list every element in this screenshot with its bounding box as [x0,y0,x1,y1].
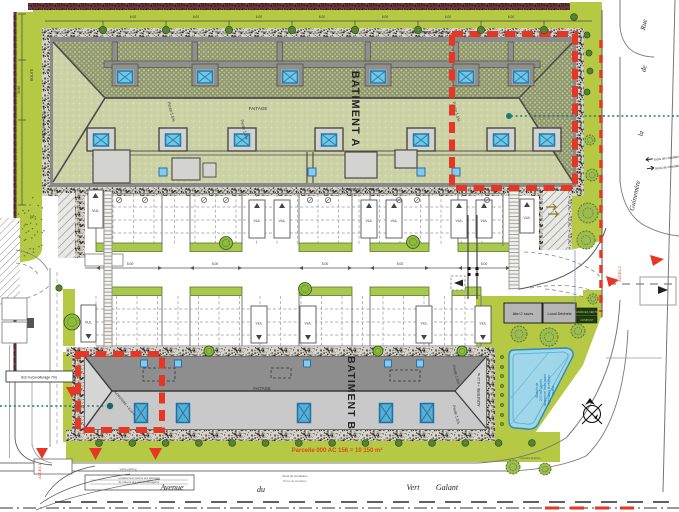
svg-text:6.00: 6.00 [382,15,388,19]
svg-text:6.00: 6.00 [319,15,325,19]
svg-text:VUL: VUL [480,322,487,326]
svg-text:5.00: 5.00 [127,262,134,266]
svg-text:Local Déchets: Local Déchets [547,312,571,316]
svg-text:6.00: 6.00 [445,15,451,19]
svg-text:Borne de circulation: Borne de circulation [284,479,307,483]
svg-text:VUL: VUL [421,322,428,326]
svg-text:Coussins berlinois: Coussins berlinois [519,456,541,460]
svg-text:Sens de circulation: Sens de circulation [282,474,308,478]
svg-text:ACROTERE + 10.48 m: ACROTERE + 10.48 m [42,107,46,142]
svg-text:5.00: 5.00 [212,262,219,266]
svg-text:VUL: VUL [279,219,286,223]
svg-text:VUL: VUL [85,321,92,325]
svg-text:5.00: 5.00 [481,262,488,266]
svg-text:6.00: 6.00 [193,15,199,19]
svg-text:VUL: VUL [391,219,398,223]
svg-text:public: public [551,385,555,394]
svg-text:VUL: VUL [366,219,373,223]
svg-text:39.86: 39.86 [17,86,21,94]
svg-text:VUL: VUL [524,216,531,220]
svg-text:Avenue: Avenue [159,483,184,492]
svg-text:sortie parking: sortie parking [120,467,137,471]
svg-text:ESPACES VERTS: ESPACES VERTS [576,310,598,314]
svg-text:5.00: 5.00 [322,262,329,266]
svg-text:Galant: Galant [436,483,459,492]
svg-text:ACCES 1: ACCES 1 [38,463,42,478]
svg-text:COMPOST: COMPOST [580,318,594,322]
svg-text:BATIMENT B: BATIMENT B [345,356,357,430]
svg-text:ROUTE: ROUTE [30,68,34,81]
svg-text:de collecte des ordures ménagè: de collecte des ordures ménagères [119,480,160,484]
svg-text:6.00: 6.00 [256,15,262,19]
svg-text:ACCES 2: ACCES 2 [618,266,622,281]
svg-text:VUL: VUL [481,219,488,223]
svg-text:6.00: 6.00 [508,15,514,19]
svg-text:ACROTERE + 8.10 m: ACROTERE + 8.10 m [477,373,481,406]
svg-text:6.00: 6.00 [130,15,136,19]
svg-text:Parcelle 000 AC 156 = 10 150 m: Parcelle 000 AC 156 = 10 150 m² [292,447,383,454]
svg-text:emplacement réservé aux véhicu: emplacement réservé aux véhicules [118,476,160,480]
svg-text:FAITAGE: FAITAGE [253,386,271,391]
svg-text:du: du [257,485,265,494]
svg-text:VUL: VUL [456,219,463,223]
svg-text:VUL: VUL [256,322,263,326]
svg-text:FAITAGE: FAITAGE [249,106,268,111]
svg-text:VUL: VUL [305,322,312,326]
svg-text:VUL: VUL [92,209,99,213]
svg-text:ACROTERE + 10.48 m: ACROTERE + 10.48 m [341,188,378,192]
svg-text:6x2 m (covoiturage 7m): 6x2 m (covoiturage 7m) [21,376,57,380]
svg-text:Abri 2 roues: Abri 2 roues [513,312,534,316]
svg-text:Vert: Vert [407,483,421,492]
svg-text:BATIMENT A: BATIMENT A [349,71,361,148]
svg-text:5.00: 5.00 [397,262,404,266]
svg-text:VUL: VUL [254,219,261,223]
